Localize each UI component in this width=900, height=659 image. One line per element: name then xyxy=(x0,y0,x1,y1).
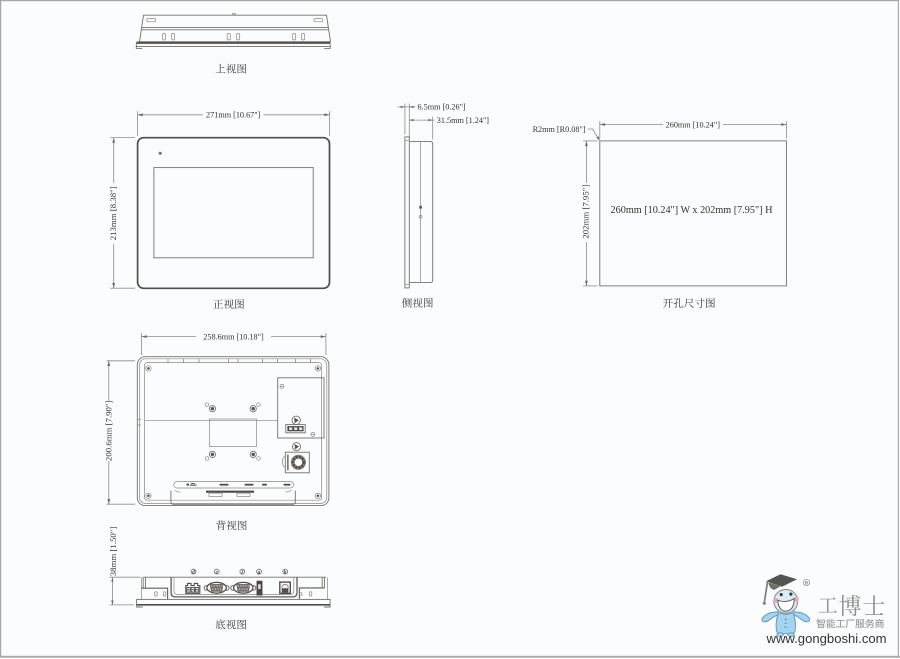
svg-text:271mm [10.67"]: 271mm [10.67"] xyxy=(206,111,261,120)
svg-text:258.6mm [10.18"]: 258.6mm [10.18"] xyxy=(203,332,264,341)
svg-text:R2mm [R0.08"]: R2mm [R0.08"] xyxy=(533,125,586,134)
svg-text:h: h xyxy=(284,571,287,576)
svg-text:6.5mm [0.26"]: 6.5mm [0.26"] xyxy=(418,103,466,112)
svg-text:31.5mm [1.24"]: 31.5mm [1.24"] xyxy=(437,116,490,125)
svg-text:www.gongboshi.com: www.gongboshi.com xyxy=(766,631,887,646)
svg-text:213mm [8.38"]: 213mm [8.38"] xyxy=(108,186,118,240)
svg-text:260mm [10.24"] W x 202mm [7.95: 260mm [10.24"] W x 202mm [7.95"] H xyxy=(611,205,774,216)
svg-text:g: g xyxy=(257,571,261,576)
svg-text:260mm [10.24"]: 260mm [10.24"] xyxy=(666,120,721,129)
svg-text:200.6mm [7.90"]: 200.6mm [7.90"] xyxy=(104,400,114,461)
svg-text:202mm [7.95"]: 202mm [7.95"] xyxy=(580,185,590,239)
svg-text:38mm [1.50"]: 38mm [1.50"] xyxy=(108,527,118,577)
